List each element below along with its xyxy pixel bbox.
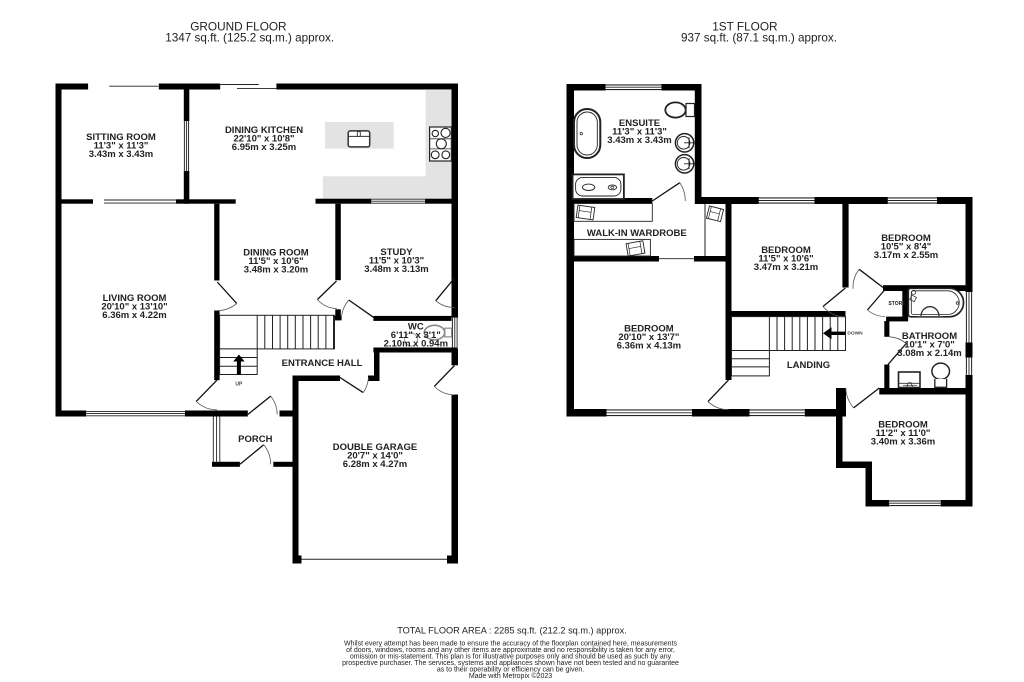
svg-text:3.48m x 3.13m: 3.48m x 3.13m	[364, 264, 428, 275]
svg-text:WALK-IN WARDROBE: WALK-IN WARDROBE	[587, 228, 687, 239]
svg-text:ENTRANCE HALL: ENTRANCE HALL	[282, 358, 363, 369]
svg-text:PORCH: PORCH	[238, 434, 272, 445]
svg-text:3.47m x 3.21m: 3.47m x 3.21m	[754, 262, 818, 273]
svg-text:6.36m x 4.22m: 6.36m x 4.22m	[102, 310, 166, 321]
svg-text:6.36m x 4.13m: 6.36m x 4.13m	[617, 340, 681, 351]
svg-text:TOTAL FLOOR AREA : 2285 sq.ft.: TOTAL FLOOR AREA : 2285 sq.ft. (212.2 sq…	[397, 626, 627, 636]
svg-text:6.28m x 4.27m: 6.28m x 4.27m	[343, 459, 407, 470]
svg-text:937 sq.ft. (87.1 sq.m.) approx: 937 sq.ft. (87.1 sq.m.) approx.	[681, 32, 837, 45]
svg-text:3.17m x 2.55m: 3.17m x 2.55m	[874, 250, 938, 261]
svg-text:UP: UP	[235, 381, 243, 387]
svg-text:2.10m x 0.94m: 2.10m x 0.94m	[384, 339, 448, 350]
svg-text:DOWN: DOWN	[847, 331, 863, 337]
svg-text:3.48m x 3.20m: 3.48m x 3.20m	[244, 264, 308, 275]
svg-text:3.40m x 3.36m: 3.40m x 3.36m	[871, 436, 935, 447]
svg-text:1347 sq.ft. (125.2 sq.m.) appr: 1347 sq.ft. (125.2 sq.m.) approx.	[165, 32, 334, 45]
svg-text:LANDING: LANDING	[787, 360, 830, 371]
svg-text:6.95m x 3.25m: 6.95m x 3.25m	[232, 142, 296, 153]
svg-text:3.08m x 2.14m: 3.08m x 2.14m	[897, 348, 961, 359]
svg-text:3.43m x 3.43m: 3.43m x 3.43m	[607, 135, 671, 146]
svg-text:STORE: STORE	[888, 301, 906, 307]
svg-text:Made with Metropix ©2023: Made with Metropix ©2023	[469, 672, 552, 680]
svg-text:3.43m x 3.43m: 3.43m x 3.43m	[89, 149, 153, 160]
